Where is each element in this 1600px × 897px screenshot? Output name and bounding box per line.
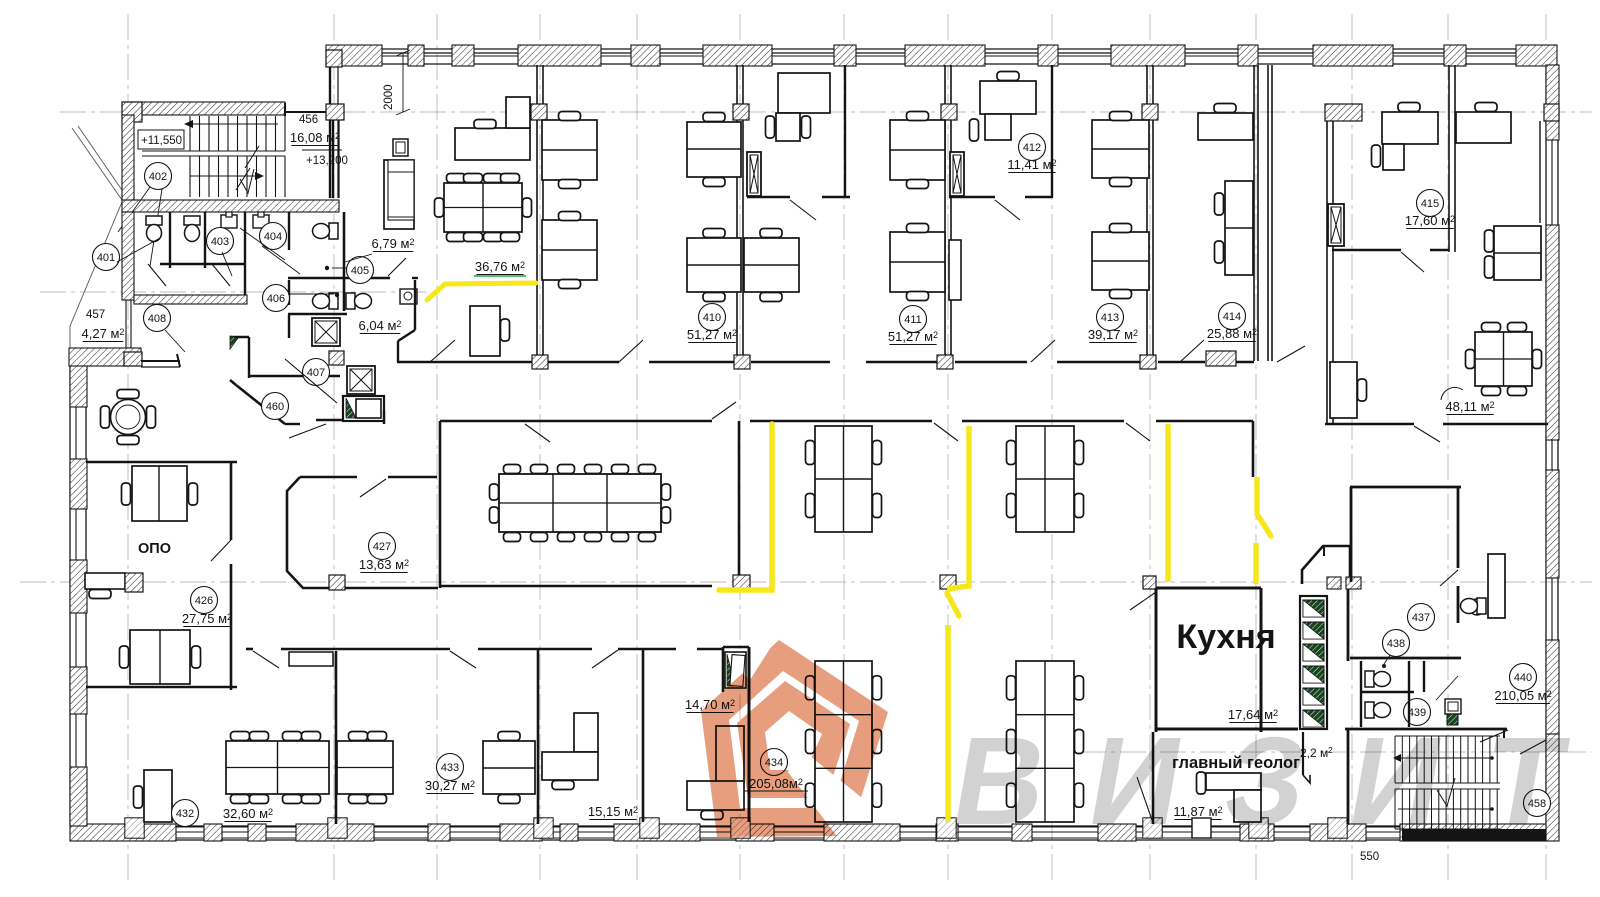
- svg-text:16,08 м2: 16,08 м2: [290, 130, 340, 145]
- svg-text:440: 440: [1514, 672, 1532, 684]
- svg-text:ОПО: ОПО: [138, 541, 171, 557]
- svg-text:437: 437: [1412, 612, 1430, 624]
- svg-text:6,04 м2: 6,04 м2: [359, 318, 402, 333]
- svg-text:36,76 м2: 36,76 м2: [475, 259, 525, 274]
- svg-text:11,41 м2: 11,41 м2: [1007, 157, 1056, 172]
- svg-text:51,27 м2: 51,27 м2: [888, 329, 938, 344]
- svg-text:15,15 м2: 15,15 м2: [588, 804, 638, 819]
- svg-text:414: 414: [1223, 311, 1241, 323]
- svg-text:6,79 м2: 6,79 м2: [372, 236, 415, 251]
- svg-text:433: 433: [441, 762, 459, 774]
- svg-text:438: 438: [1387, 638, 1405, 650]
- svg-text:13,63 м2: 13,63 м2: [359, 557, 409, 572]
- svg-text:405: 405: [351, 265, 369, 277]
- svg-text:51,27 м2: 51,27 м2: [687, 327, 737, 342]
- svg-text:2000: 2000: [383, 84, 395, 110]
- svg-text:426: 426: [195, 595, 213, 607]
- svg-text:402: 402: [149, 171, 167, 183]
- svg-text:4,27 м2: 4,27 м2: [82, 326, 125, 341]
- svg-text:427: 427: [373, 541, 391, 553]
- svg-text:410: 410: [703, 312, 721, 324]
- svg-text:457: 457: [86, 309, 105, 321]
- svg-text:48,11 м2: 48,11 м2: [1445, 399, 1494, 414]
- svg-text:ВИЗИТ: ВИЗИТ: [943, 711, 1600, 851]
- svg-text:413: 413: [1101, 312, 1119, 324]
- svg-text:403: 403: [211, 236, 229, 248]
- svg-text:30,27 м2: 30,27 м2: [425, 778, 475, 793]
- svg-text:432: 432: [176, 808, 194, 820]
- svg-text:411: 411: [904, 314, 922, 326]
- svg-text:210,05 м2: 210,05 м2: [1494, 688, 1551, 703]
- svg-text:+13,200: +13,200: [306, 155, 348, 167]
- svg-text:550: 550: [1360, 851, 1379, 863]
- svg-text:401: 401: [97, 252, 115, 264]
- svg-text:412: 412: [1023, 142, 1041, 154]
- svg-text:456: 456: [299, 114, 318, 126]
- svg-text:407: 407: [307, 367, 325, 379]
- svg-text:+11,550: +11,550: [141, 135, 182, 147]
- svg-text:27,75 м2: 27,75 м2: [182, 611, 232, 626]
- svg-text:39,17 м2: 39,17 м2: [1088, 327, 1138, 342]
- svg-text:408: 408: [148, 313, 166, 325]
- svg-text:460: 460: [266, 401, 284, 413]
- svg-text:17,60 м2: 17,60 м2: [1405, 213, 1455, 228]
- svg-text:32,60 м2: 32,60 м2: [223, 806, 273, 821]
- svg-text:Кухня: Кухня: [1176, 618, 1275, 656]
- svg-text:404: 404: [264, 231, 282, 243]
- svg-text:415: 415: [1421, 198, 1439, 210]
- svg-text:25,88 м2: 25,88 м2: [1207, 326, 1257, 341]
- svg-text:406: 406: [267, 293, 285, 305]
